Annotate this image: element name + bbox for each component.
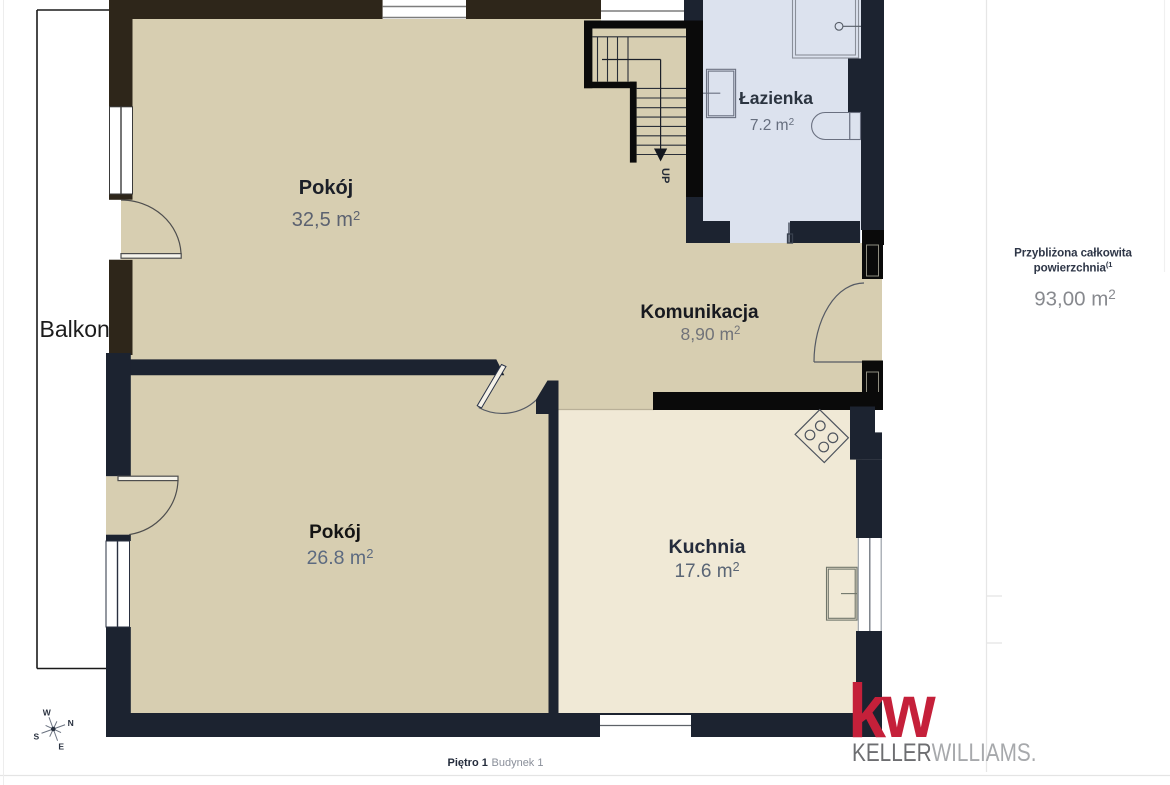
svg-text:Łazienka: Łazienka: [739, 88, 813, 108]
svg-text:Balkon: Balkon: [40, 316, 110, 342]
svg-text:32,5 m2: 32,5 m2: [292, 208, 360, 231]
svg-text:Komunikacja: Komunikacja: [640, 302, 759, 323]
svg-text:E: E: [58, 742, 64, 752]
svg-text:17.6 m2: 17.6 m2: [674, 560, 739, 582]
svg-text:Budynek 1: Budynek 1: [492, 757, 544, 769]
svg-text:8,90 m2: 8,90 m2: [681, 324, 741, 344]
svg-text:N: N: [68, 718, 74, 728]
svg-text:Kuchnia: Kuchnia: [669, 536, 746, 558]
svg-text:powierzchnia(1: powierzchnia(1: [1034, 260, 1113, 275]
svg-text:Pokój: Pokój: [309, 522, 361, 543]
svg-text:93,00 m2: 93,00 m2: [1034, 287, 1116, 311]
svg-text:Piętro 1: Piętro 1: [448, 757, 488, 769]
svg-text:7.2 m2: 7.2 m2: [750, 117, 795, 134]
svg-text:W: W: [43, 708, 52, 718]
svg-text:KELLERWILLIAMS.: KELLERWILLIAMS.: [852, 738, 1036, 766]
svg-text:26.8 m2: 26.8 m2: [307, 546, 374, 569]
svg-text:Pokój: Pokój: [299, 177, 353, 199]
svg-text:UP: UP: [659, 168, 671, 183]
svg-text:S: S: [33, 732, 39, 742]
svg-text:Przybliżona całkowita: Przybliżona całkowita: [1014, 247, 1132, 260]
